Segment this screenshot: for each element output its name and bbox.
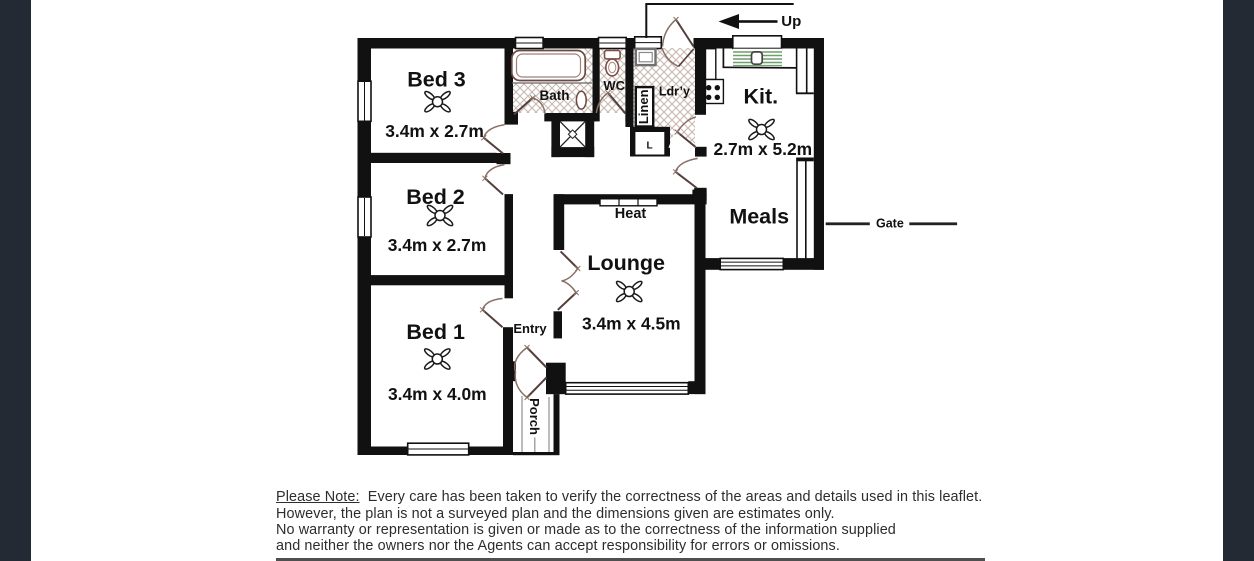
svg-text:Lounge: Lounge bbox=[587, 251, 665, 275]
svg-text:3.4m x 2.7m: 3.4m x 2.7m bbox=[388, 235, 487, 255]
svg-text:Entry: Entry bbox=[513, 321, 547, 336]
svg-text:2.7m x 5.2m: 2.7m x 5.2m bbox=[713, 139, 812, 159]
svg-text:Linen: Linen bbox=[636, 89, 651, 124]
svg-text:Bath: Bath bbox=[540, 88, 570, 103]
svg-text:Ldr’y: Ldr’y bbox=[659, 84, 690, 98]
svg-text:Bed 1: Bed 1 bbox=[406, 320, 465, 344]
svg-text:L: L bbox=[646, 141, 652, 152]
svg-text:3.4m x 4.0m: 3.4m x 4.0m bbox=[388, 384, 487, 404]
svg-text:Meals: Meals bbox=[729, 205, 789, 229]
svg-text:Porch: Porch bbox=[527, 398, 542, 435]
svg-text:Bed 3: Bed 3 bbox=[407, 68, 466, 92]
svg-text:3.4m x 2.7m: 3.4m x 2.7m bbox=[385, 121, 484, 141]
svg-text:3.4m x 4.5m: 3.4m x 4.5m bbox=[582, 314, 681, 334]
svg-text:Up: Up bbox=[781, 13, 801, 30]
svg-text:Bed 2: Bed 2 bbox=[406, 185, 465, 209]
svg-text:Heat: Heat bbox=[615, 206, 647, 222]
svg-text:Gate: Gate bbox=[876, 216, 904, 230]
svg-text:Kit.: Kit. bbox=[743, 85, 778, 109]
svg-text:WC: WC bbox=[603, 78, 625, 93]
